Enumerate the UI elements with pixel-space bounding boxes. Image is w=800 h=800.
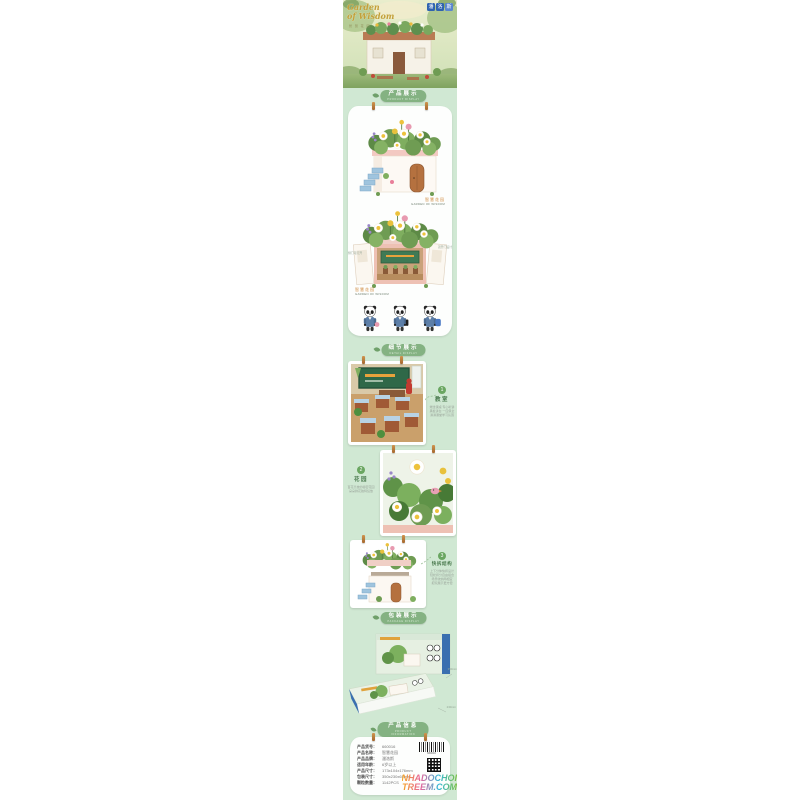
detail-title: 花园 — [345, 475, 377, 483]
watermark-line2: TREEM.COM — [402, 783, 458, 792]
spec-label: 颗粒数量： — [357, 780, 382, 786]
brand-logo: 潘 洛 斯 — [427, 3, 453, 11]
badge-package-sub: PACKAGE DISPLAY — [388, 620, 420, 623]
brand-logo-char: 洛 — [436, 3, 444, 11]
detail-photo-structure — [350, 540, 426, 608]
badge-detail-label: 细节展示 — [388, 345, 418, 352]
number-badge: 1 — [438, 386, 446, 394]
hero-title-line2: of Wisdom — [347, 12, 394, 21]
pin-icon — [400, 356, 403, 364]
pin-icon — [425, 102, 428, 110]
listing-strip: Garden of Wisdom 智 慧 花 园 潘 洛 斯 产品展示 PROD… — [343, 0, 457, 800]
detail-label-garden: 2 花园 百花齐放的秘密花园 朵朵鲜花独特绽放 — [345, 466, 377, 493]
badge-product-sub: PRODUCT DISPLAY — [387, 98, 419, 101]
product-photo-open — [350, 206, 450, 288]
pin-icon — [372, 102, 375, 110]
pin-icon — [362, 535, 365, 543]
pin-icon — [392, 445, 395, 453]
hero-subtitle: 智 慧 花 园 — [349, 24, 371, 28]
annotation-right: 双开门设计 — [438, 246, 452, 249]
badge-detail-display: 细节展示 DETAIL DISPLAY — [374, 344, 425, 356]
spec-value: 1142PCS — [382, 780, 399, 786]
pin-icon — [362, 356, 365, 364]
caption-en: GARDEN OF WISDOM — [355, 292, 389, 296]
brand-logo-char: 潘 — [427, 3, 435, 11]
pin-icon — [372, 733, 375, 741]
pin-icon — [432, 445, 435, 453]
panda-figures — [354, 302, 446, 334]
detail-photo-garden — [380, 450, 456, 536]
leaf-icon — [372, 92, 379, 99]
photo-caption-open: 智慧花园 GARDEN OF WISDOM — [355, 288, 389, 296]
badge-product-display: 产品展示 PRODUCT DISPLAY — [373, 90, 426, 102]
hero-title: Garden of Wisdom — [347, 3, 394, 21]
page-canvas: Garden of Wisdom 智 慧 花 园 潘 洛 斯 产品展示 PROD… — [0, 0, 800, 800]
badge-product-info: 产品信息 PRODUCT INFORMATION — [372, 722, 429, 737]
badge-product-label: 产品展示 — [387, 91, 419, 98]
brand-logo-char: 斯 — [445, 3, 453, 11]
product-display-card: 智慧花园 GARDEN OF WISDOM — [348, 106, 452, 336]
detail-label-structure: 3 快拆结构 上下分体快拆设计 轻松拆分自由组合 场景收纳两相宜 把玩展示更方便 — [428, 552, 456, 585]
badge-package-display: 包装展示 PACKAGE DISPLAY — [374, 612, 427, 624]
detail-label-classroom: 1 教室 端坐课桌 专心听讲 黑板讲台 一应俱全 满满课堂学习氛围 — [429, 386, 455, 417]
pin-icon — [424, 733, 427, 741]
package-boxes-photo — [346, 628, 454, 714]
hero-image: Garden of Wisdom 智 慧 花 园 潘 洛 斯 — [343, 0, 457, 88]
detail-desc: 朵朵鲜花独特绽放 — [345, 489, 377, 493]
package-dim-top: 350mm — [448, 668, 457, 671]
detail-desc: 把玩展示更方便 — [428, 581, 456, 585]
leaf-icon — [373, 614, 380, 621]
badge-detail-sub: DETAIL DISPLAY — [388, 352, 418, 355]
structure-illustration — [353, 543, 423, 605]
pin-icon — [402, 535, 405, 543]
number-badge: 2 — [357, 466, 365, 474]
watermark: NHADOCHOI TREEM.COM — [402, 774, 458, 792]
number-badge: 3 — [438, 552, 446, 560]
detail-desc: 满满课堂学习氛围 — [429, 413, 455, 417]
detail-title: 快拆结构 — [428, 561, 456, 567]
classroom-illustration — [351, 364, 423, 442]
qr-code — [427, 758, 441, 772]
product-photo-closed — [352, 110, 448, 196]
photo-caption: 智慧花园 GARDEN OF WISDOM — [411, 198, 445, 206]
leaf-icon — [374, 346, 381, 353]
detail-photo-classroom — [348, 361, 426, 445]
leaf-icon — [370, 726, 376, 733]
barcode — [419, 742, 444, 752]
badge-info-label: 产品信息 — [385, 723, 422, 730]
badge-info-sub: PRODUCT INFORMATION — [385, 730, 422, 736]
garden-illustration — [383, 453, 453, 533]
annotation-left: 侧门可打开 — [348, 252, 362, 255]
barcode-number: 660016 — [419, 752, 444, 755]
package-dim-right: 230mm — [447, 706, 456, 709]
badge-package-label: 包装展示 — [388, 613, 420, 620]
detail-title: 教室 — [429, 395, 455, 403]
